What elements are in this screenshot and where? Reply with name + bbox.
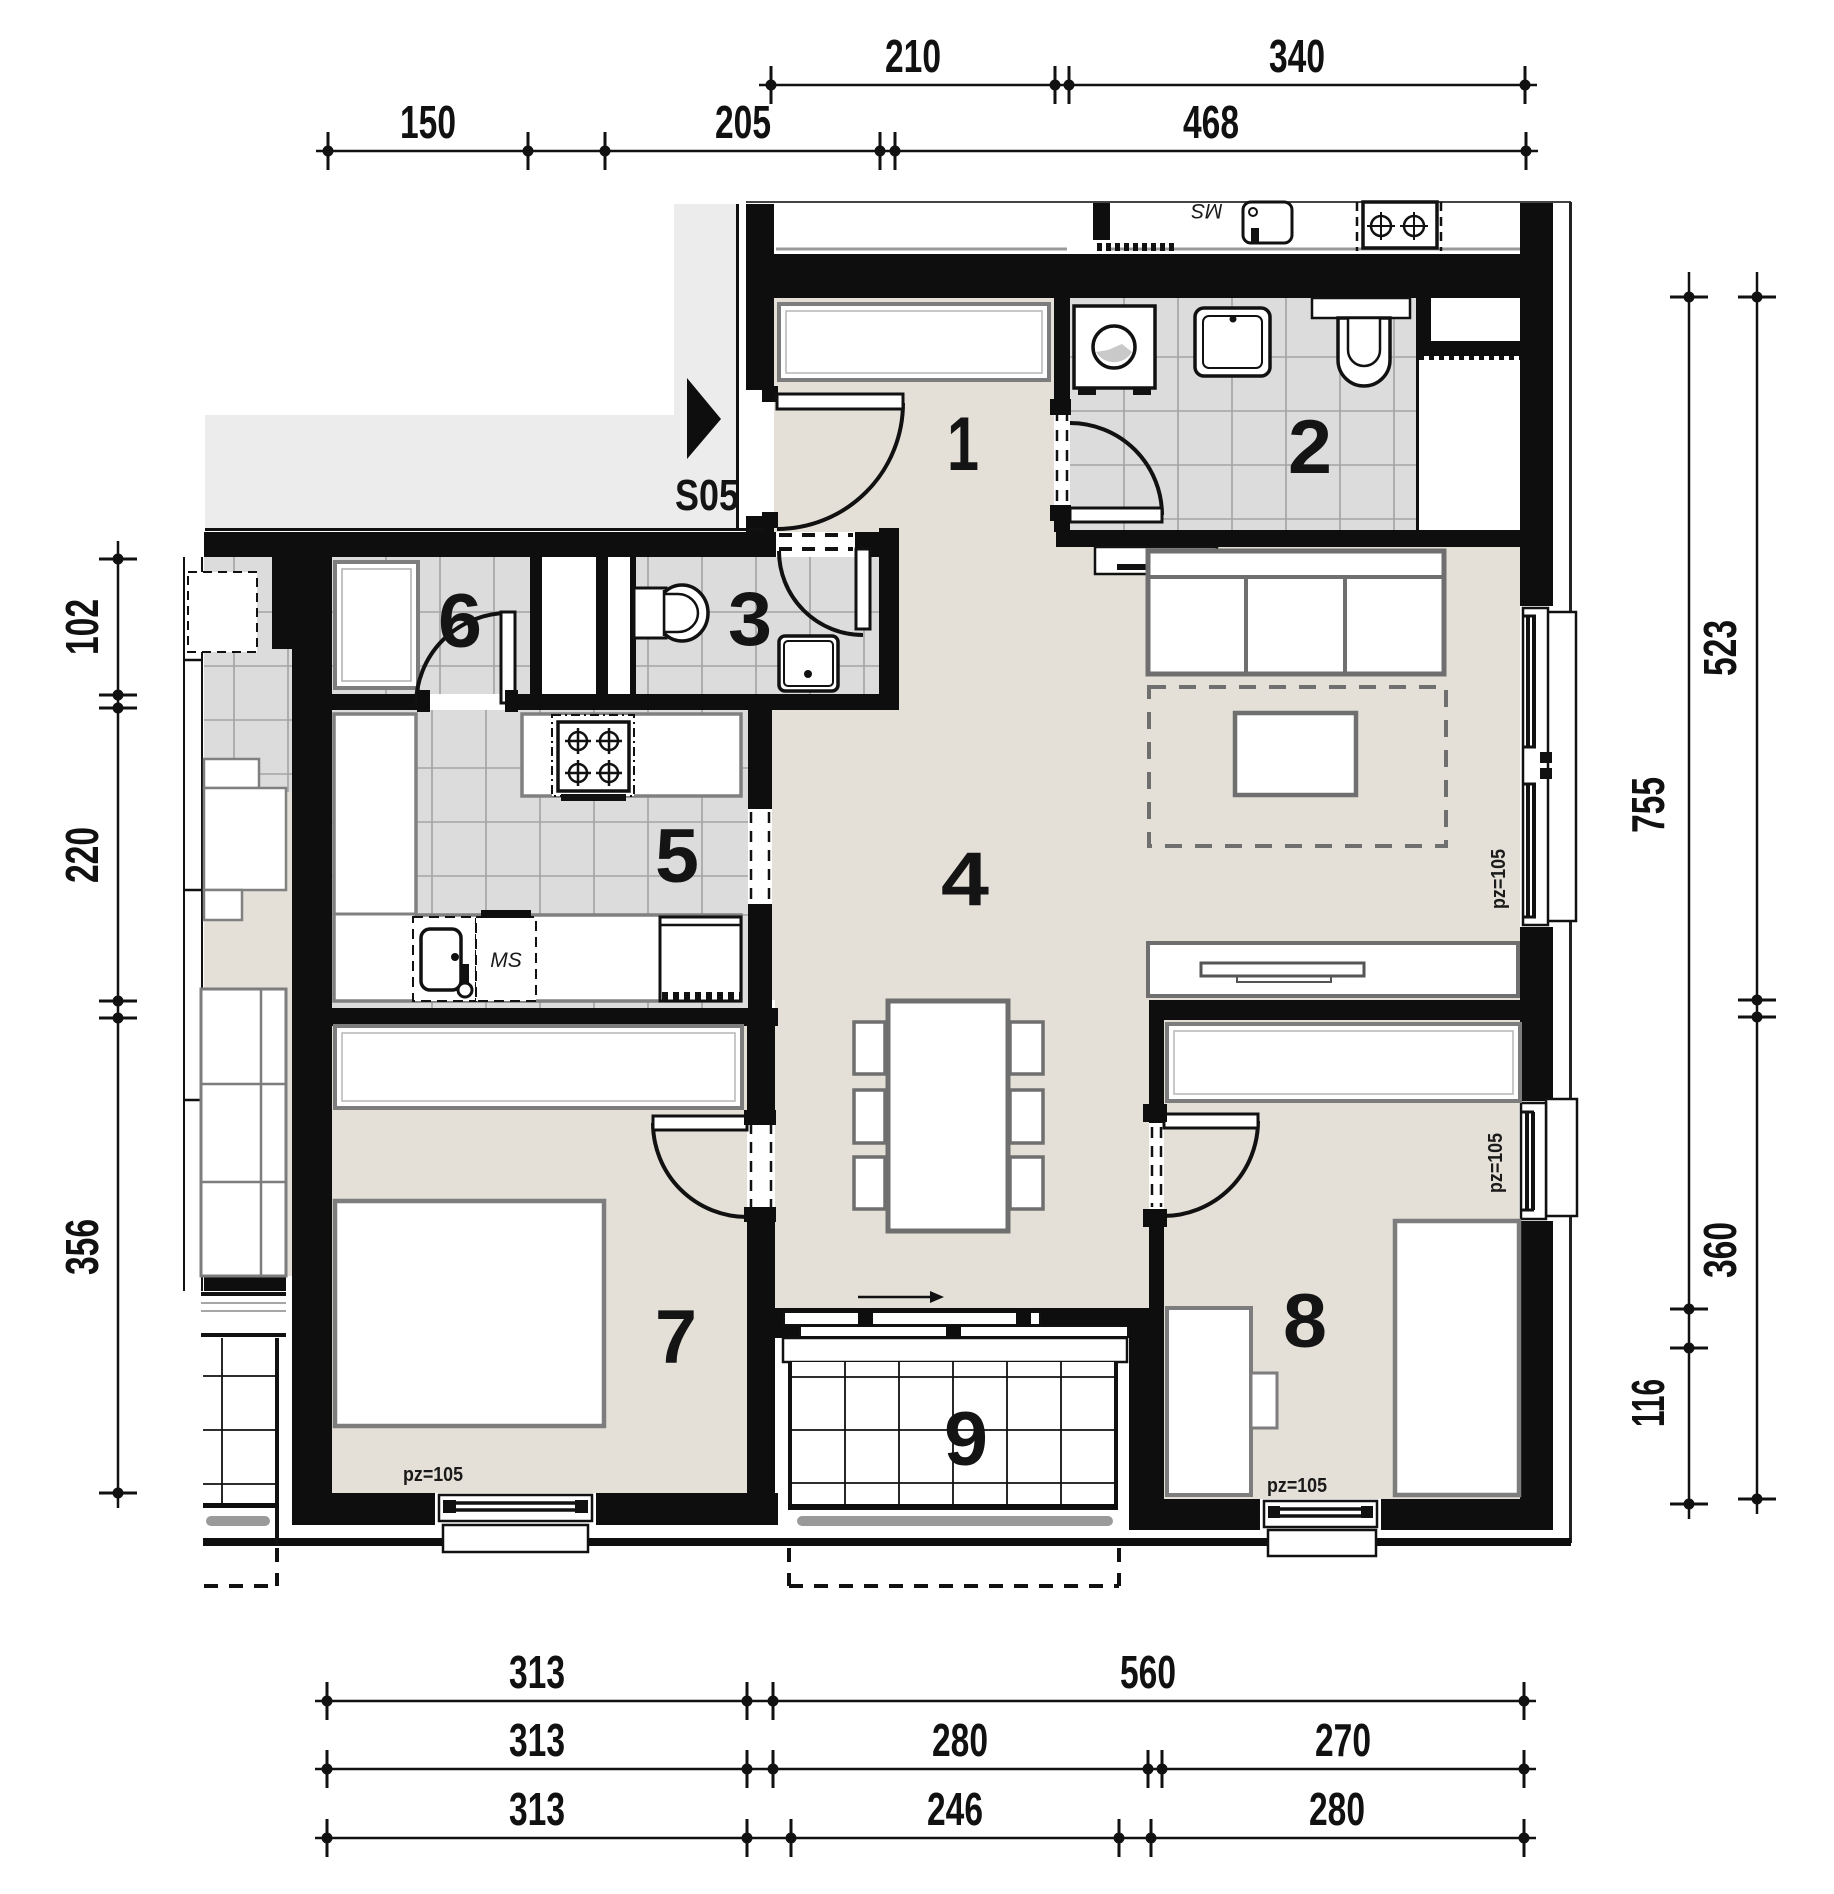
svg-text:MS: MS bbox=[490, 949, 522, 972]
svg-text:280: 280 bbox=[932, 1714, 988, 1766]
svg-text:pz=105: pz=105 bbox=[1488, 849, 1510, 909]
svg-text:5: 5 bbox=[655, 814, 699, 899]
svg-text:313: 313 bbox=[509, 1783, 565, 1835]
svg-text:210: 210 bbox=[885, 30, 941, 82]
svg-text:205: 205 bbox=[715, 96, 771, 148]
svg-text:102: 102 bbox=[56, 599, 108, 655]
svg-text:MS: MS bbox=[1191, 199, 1223, 222]
svg-text:313: 313 bbox=[509, 1714, 565, 1766]
svg-text:313: 313 bbox=[509, 1646, 565, 1698]
svg-text:S05: S05 bbox=[675, 471, 739, 520]
svg-text:pz=105: pz=105 bbox=[403, 1464, 463, 1486]
svg-text:560: 560 bbox=[1120, 1646, 1176, 1698]
svg-text:523: 523 bbox=[1694, 620, 1746, 676]
svg-text:pz=105: pz=105 bbox=[1485, 1133, 1507, 1193]
svg-text:468: 468 bbox=[1183, 96, 1239, 148]
svg-text:356: 356 bbox=[56, 1219, 108, 1275]
svg-text:340: 340 bbox=[1269, 30, 1325, 82]
svg-text:pz=105: pz=105 bbox=[1267, 1475, 1327, 1497]
svg-text:116: 116 bbox=[1622, 1379, 1674, 1427]
svg-text:8: 8 bbox=[1283, 1279, 1327, 1364]
svg-text:220: 220 bbox=[56, 827, 108, 883]
svg-text:3: 3 bbox=[728, 577, 772, 662]
svg-text:755: 755 bbox=[1622, 777, 1674, 833]
svg-text:150: 150 bbox=[400, 96, 456, 148]
svg-text:246: 246 bbox=[927, 1783, 983, 1835]
svg-text:270: 270 bbox=[1315, 1714, 1371, 1766]
svg-text:7: 7 bbox=[655, 1295, 697, 1380]
svg-text:6: 6 bbox=[438, 579, 482, 664]
svg-text:4: 4 bbox=[941, 837, 989, 922]
svg-text:360: 360 bbox=[1694, 1222, 1746, 1278]
svg-text:1: 1 bbox=[947, 402, 979, 487]
svg-text:2: 2 bbox=[1288, 405, 1332, 490]
svg-text:9: 9 bbox=[944, 1397, 988, 1482]
svg-text:280: 280 bbox=[1309, 1783, 1365, 1835]
